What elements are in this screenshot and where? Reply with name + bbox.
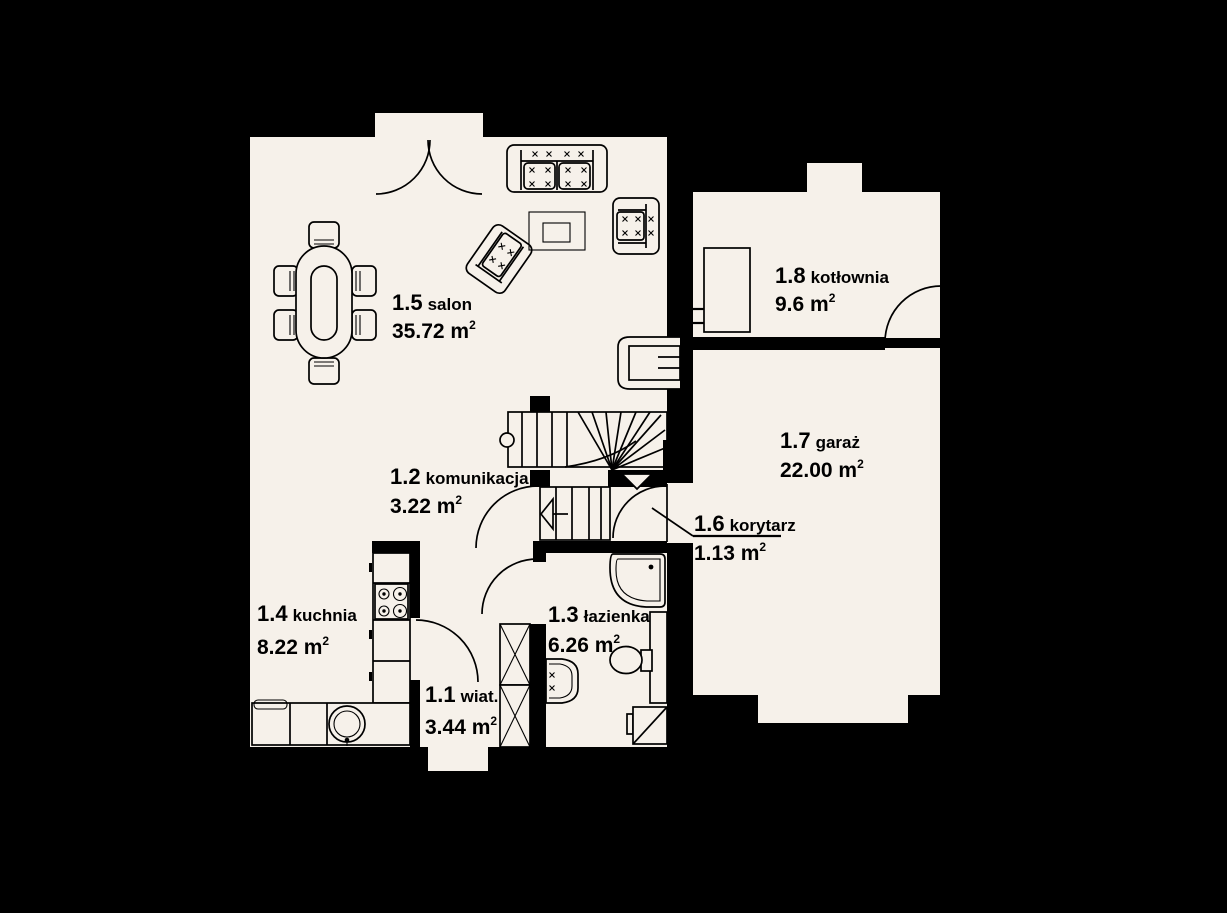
- washbasin: [546, 659, 578, 703]
- sofa: [507, 145, 607, 192]
- dining-table: [296, 246, 352, 358]
- label-salon-area: 35.72 m2: [392, 318, 476, 343]
- armchair: [613, 198, 659, 254]
- floor-plan: 1.5salon 35.72 m2 1.2komunikacja 3.22 m2…: [0, 0, 1227, 913]
- label-komunikacja-area: 3.22 m2: [390, 493, 462, 518]
- label-wiatrolap-area: 3.44 m2: [425, 714, 497, 739]
- toilet: [610, 647, 652, 674]
- entry-porch: [428, 742, 488, 771]
- floor-plan-page: 1.5salon 35.72 m2 1.2komunikacja 3.22 m2…: [0, 0, 1227, 913]
- chimney-recess: [807, 163, 862, 194]
- wardrobe: [500, 624, 530, 747]
- washing-machine: [627, 707, 667, 744]
- label-kuchnia-area: 8.22 m2: [257, 634, 329, 659]
- garage-apron: [758, 695, 908, 723]
- label-kotlownia-area: 9.6 m2: [775, 291, 836, 316]
- label-korytarz-area: 1.13 m2: [694, 540, 766, 565]
- terrace-door-recess: [375, 113, 483, 141]
- label-lazienka-area: 6.26 m2: [548, 632, 620, 657]
- fireplace: [618, 337, 680, 389]
- label-garaz-area: 22.00 m2: [780, 457, 864, 482]
- stair-newel-post: [500, 433, 514, 447]
